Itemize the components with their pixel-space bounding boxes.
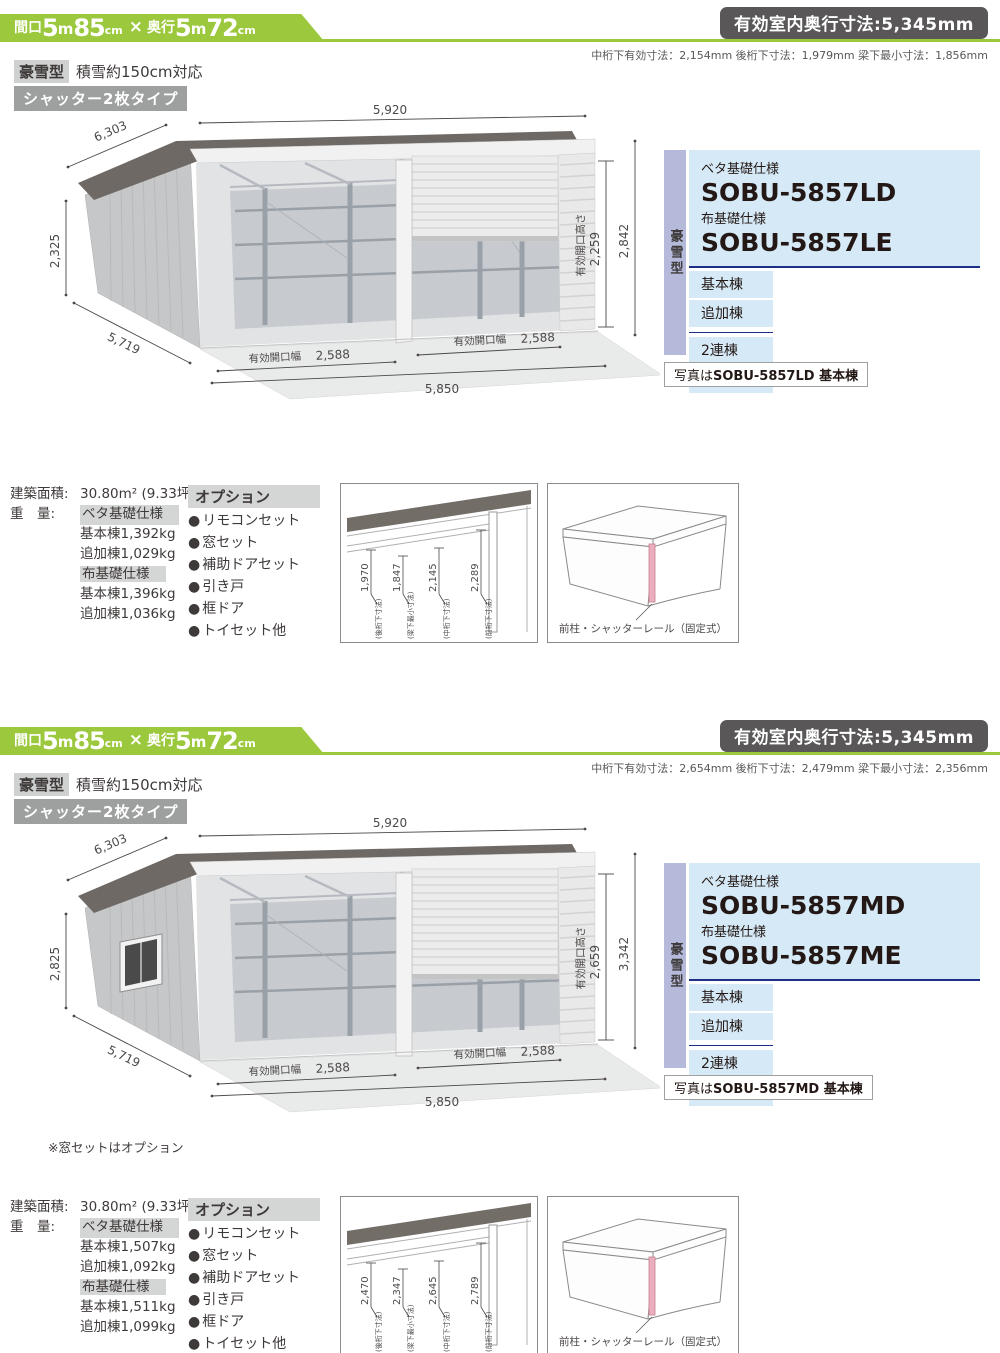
photo-caption-model: SOBU-5857MD 基本棟 <box>713 1082 863 1097</box>
beta-weight-header: ベタ基礎仕様 <box>80 505 179 525</box>
cs-label-3: (中桁下寸法) <box>442 1311 451 1352</box>
dim-outer-height: 3,342 <box>617 937 631 971</box>
option-frame-door: 框ドア <box>202 601 244 619</box>
nuno-foundation-label: 布基礎仕様 <box>701 208 968 227</box>
beta-foundation-label: ベタ基礎仕様 <box>701 871 968 890</box>
area-label: 建築面積: <box>10 1198 80 1218</box>
aperture-cm: 85 <box>73 729 104 753</box>
dim-total-width: 5,850 <box>425 382 459 396</box>
dim-opening-width-right: 2,588 <box>520 330 555 346</box>
dim-left-height: 2,825 <box>50 947 62 981</box>
cs-dim-1: 1,970 <box>360 563 371 592</box>
unit-divider <box>689 332 773 333</box>
option-sliding-door: 引き戸 <box>202 579 244 597</box>
snow-type-vertical-bar: 豪雪型 <box>664 863 686 1068</box>
snow-type-badge: 豪雪型 <box>14 773 69 796</box>
snow-type-vertical-label: 豪雪型 <box>666 942 685 990</box>
aperture-m-unit: m <box>58 20 74 40</box>
bullet-icon: ● <box>188 601 200 619</box>
bullet-icon: ● <box>188 579 200 597</box>
beta-model-name: SOBU-5857MD <box>701 890 968 921</box>
snow-load-note: 積雪約150cm対応 <box>76 61 203 82</box>
aperture-cm-unit: cm <box>105 24 123 40</box>
dim-top-width: 5,920 <box>373 103 407 117</box>
options-block: オプション ●リモコンセット ●窓セット ●補助ドアセット ●引き戸 ●框ドア … <box>188 485 338 640</box>
cs-label-1: (後桁下寸法) <box>374 598 383 639</box>
nuno-weight-basic: 基本棟1,396kg <box>10 585 196 605</box>
opening-width-label-right: 有効開口幅 <box>453 333 506 349</box>
photo-caption-prefix: 写真は <box>674 369 713 384</box>
size-header-bar: 間口5m85cm×奥行5m72cm <box>0 727 324 754</box>
pillar-diagram: 前柱・シャッターレール（固定式） <box>547 483 739 643</box>
option-sliding-door: 引き戸 <box>202 1292 244 1310</box>
shutter-rail-pillar <box>649 1257 655 1315</box>
dim-opening-width-right: 2,588 <box>520 1043 555 1059</box>
dim-opening-height: 2,659 <box>588 945 602 979</box>
model-panel: 豪雪型 ベタ基礎仕様 SOBU-5857LD 布基礎仕様 SOBU-5857LE… <box>664 150 980 395</box>
option-remote: リモコンセット <box>202 513 300 531</box>
cs-label-2: (梁下最小寸法) <box>406 591 415 639</box>
bullet-icon: ● <box>188 623 200 641</box>
unit-additional: 追加棟 <box>689 1013 773 1040</box>
aperture-label: 間口 <box>14 730 42 753</box>
product-section-sobu-5857ld: 間口5m85cm×奥行5m72cm 有効室内奥行寸法:5,345mm 中桁下有効… <box>0 0 1000 713</box>
beta-weight-basic: 基本棟1,392kg <box>10 525 196 545</box>
depth-m-unit: m <box>191 733 207 753</box>
model-names-box: ベタ基礎仕様 SOBU-5857LD 布基礎仕様 SOBU-5857LE <box>689 150 980 268</box>
weight-label: 重 量: <box>10 505 80 525</box>
cs-label-4: (前桁下寸法) <box>484 598 493 639</box>
dim-side-diagonal: 5,719 <box>105 1043 142 1071</box>
model-panel-main: ベタ基礎仕様 SOBU-5857LD 布基礎仕様 SOBU-5857LE 基本棟… <box>689 150 980 395</box>
interior-depth-badge: 有効室内奥行寸法:5,345mm <box>720 720 988 752</box>
product-section-sobu-5857md: 間口5m85cm×奥行5m72cm 有効室内奥行寸法:5,345mm 中桁下有効… <box>0 713 1000 1353</box>
bullet-icon: ● <box>188 1270 200 1288</box>
unit-divider <box>689 1045 773 1046</box>
nuno-model-name: SOBU-5857ME <box>701 940 968 971</box>
photo-caption: 写真はSOBU-5857LD 基本棟 <box>664 362 868 387</box>
pillar-diagram-label: 前柱・シャッターレール（固定式） <box>559 1335 727 1348</box>
cs-dim-2: 1,847 <box>392 563 403 592</box>
beta-weight-additional: 追加棟1,029kg <box>10 545 196 565</box>
clearance-note: 中桁下有効寸法：2,154mm 後桁下寸法：1,979mm 梁下最小寸法：1,8… <box>591 47 988 63</box>
model-names-box: ベタ基礎仕様 SOBU-5857MD 布基礎仕様 SOBU-5857ME <box>689 863 980 981</box>
aperture-label: 間口 <box>14 17 42 40</box>
bullet-icon: ● <box>188 1336 200 1353</box>
unit-double: 2連棟 <box>689 1050 773 1077</box>
cs-dim-2: 2,347 <box>392 1276 403 1305</box>
photo-caption-model: SOBU-5857LD 基本棟 <box>713 369 858 384</box>
bullet-icon: ● <box>188 1248 200 1266</box>
pillar-diagram-label: 前柱・シャッターレール（固定式） <box>559 622 727 635</box>
pillar-diagram: 前柱・シャッターレール（固定式） <box>547 1196 739 1353</box>
snow-type-row: 豪雪型 積雪約150cm対応 <box>14 773 203 796</box>
beta-weight-additional: 追加棟1,092kg <box>10 1258 196 1278</box>
aperture-m: 5 <box>42 16 58 40</box>
opening-width-label-right: 有効開口幅 <box>453 1046 506 1062</box>
cs-label-1: (後桁下寸法) <box>374 1311 383 1352</box>
bullet-icon: ● <box>188 513 200 531</box>
bullet-icon: ● <box>188 557 200 575</box>
options-title: オプション <box>188 485 320 508</box>
nuno-weight-header: 布基礎仕様 <box>80 566 166 582</box>
depth-m: 5 <box>175 729 191 753</box>
bullet-icon: ● <box>188 1226 200 1244</box>
dim-total-width: 5,850 <box>425 1095 459 1109</box>
unit-basic: 基本棟 <box>689 984 773 1011</box>
area-value: 30.80m² (9.33坪) <box>80 1198 196 1218</box>
depth-cm: 72 <box>206 729 237 753</box>
shutter-rail-pillar <box>649 544 655 602</box>
nuno-foundation-label: 布基礎仕様 <box>701 921 968 940</box>
opening-width-label-left: 有効開口幅 <box>248 350 301 366</box>
dim-top-width: 5,920 <box>373 816 407 830</box>
cs-label-3: (中桁下寸法) <box>442 598 451 639</box>
snow-type-badge: 豪雪型 <box>14 60 69 83</box>
aperture-cm-unit: cm <box>105 737 123 753</box>
options-title: オプション <box>188 1198 320 1221</box>
specs-block: 建築面積:30.80m² (9.33坪) 重 量:ベタ基礎仕様 基本棟1,507… <box>10 1198 196 1338</box>
beta-foundation-label: ベタ基礎仕様 <box>701 158 968 177</box>
times-sign: × <box>123 17 147 40</box>
option-aux-door: 補助ドアセット <box>202 557 300 575</box>
cs-label-4: (前桁下寸法) <box>484 1311 493 1352</box>
dim-side-diagonal: 5,719 <box>105 330 142 358</box>
snow-type-vertical-label: 豪雪型 <box>666 229 685 277</box>
option-frame-door: 框ドア <box>202 1314 244 1332</box>
nuno-weight-additional: 追加棟1,099kg <box>10 1318 196 1338</box>
opening-height-label: 有効開口高さ <box>574 214 587 277</box>
snow-type-vertical-bar: 豪雪型 <box>664 150 686 355</box>
garage-isometric-drawing: 5,920 6,303 2,825 5,719 3,342 有効開口高さ 2,6… <box>50 816 660 1126</box>
beta-model-name: SOBU-5857LD <box>701 177 968 208</box>
dim-opening-height: 2,259 <box>588 232 602 266</box>
bullet-icon: ● <box>188 1292 200 1310</box>
cs-dim-4: 2,789 <box>470 1276 481 1305</box>
bullet-icon: ● <box>188 535 200 553</box>
cs-label-2: (梁下最小寸法) <box>406 1304 415 1352</box>
cs-dim-3: 2,645 <box>428 1276 439 1305</box>
area-label: 建築面積: <box>10 485 80 505</box>
dim-roof-diagonal: 6,303 <box>92 831 129 857</box>
dim-roof-diagonal: 6,303 <box>92 118 129 144</box>
weight-label: 重 量: <box>10 1218 80 1238</box>
model-panel-main: ベタ基礎仕様 SOBU-5857MD 布基礎仕様 SOBU-5857ME 基本棟… <box>689 863 980 1108</box>
specs-block: 建築面積:30.80m² (9.33坪) 重 量:ベタ基礎仕様 基本棟1,392… <box>10 485 196 625</box>
catalog-page: 間口5m85cm×奥行5m72cm 有効室内奥行寸法:5,345mm 中桁下有効… <box>0 0 1000 1353</box>
dim-outer-height: 2,842 <box>617 224 631 258</box>
nuno-weight-basic: 基本棟1,511kg <box>10 1298 196 1318</box>
option-toilet-set: トイセット他 <box>202 1336 286 1353</box>
depth-label: 奥行 <box>147 730 175 753</box>
snow-type-row: 豪雪型 積雪約150cm対応 <box>14 60 203 83</box>
garage-isometric-drawing: 5,920 6,303 2,325 5,719 2,842 有効開口高さ 2,2… <box>50 103 660 413</box>
options-block: オプション ●リモコンセット ●窓セット ●補助ドアセット ●引き戸 ●框ドア … <box>188 1198 338 1353</box>
option-toilet-set: トイセット他 <box>202 623 286 641</box>
beta-weight-basic: 基本棟1,507kg <box>10 1238 196 1258</box>
option-remote: リモコンセット <box>202 1226 300 1244</box>
unit-basic: 基本棟 <box>689 271 773 298</box>
nuno-weight-additional: 追加棟1,036kg <box>10 605 196 625</box>
photo-caption: 写真はSOBU-5857MD 基本棟 <box>664 1075 873 1100</box>
cs-dim-4: 2,289 <box>470 563 481 592</box>
depth-cm: 72 <box>206 16 237 40</box>
nuno-weight-header: 布基礎仕様 <box>80 1279 166 1295</box>
depth-m: 5 <box>175 16 191 40</box>
dim-opening-width-left: 2,588 <box>315 347 350 363</box>
beta-weight-header: ベタ基礎仕様 <box>80 1218 179 1238</box>
center-pillar <box>396 160 412 343</box>
aperture-cm: 85 <box>73 16 104 40</box>
snow-load-note: 積雪約150cm対応 <box>76 774 203 795</box>
garage-body <box>78 131 660 399</box>
opening-width-label-left: 有効開口幅 <box>248 1063 301 1079</box>
cs-dim-1: 2,470 <box>360 1276 371 1305</box>
cross-section-diagram: 1,970 1,847 2,145 2,289 (後桁下寸法) (梁下最小寸法)… <box>340 483 538 643</box>
dim-opening-width-left: 2,588 <box>315 1060 350 1076</box>
depth-label: 奥行 <box>147 17 175 40</box>
model-panel: 豪雪型 ベタ基礎仕様 SOBU-5857MD 布基礎仕様 SOBU-5857ME… <box>664 863 980 1108</box>
depth-m-unit: m <box>191 20 207 40</box>
cs-dim-3: 2,145 <box>428 563 439 592</box>
size-header-bar: 間口5m85cm×奥行5m72cm <box>0 14 324 41</box>
times-sign: × <box>123 730 147 753</box>
dim-left-height: 2,325 <box>50 234 62 268</box>
photo-caption-prefix: 写真は <box>674 1082 713 1097</box>
aperture-m-unit: m <box>58 733 74 753</box>
depth-cm-unit: cm <box>238 737 256 753</box>
center-pillar <box>396 873 412 1056</box>
option-window: 窓セット <box>202 1248 258 1266</box>
depth-cm-unit: cm <box>238 24 256 40</box>
unit-double: 2連棟 <box>689 337 773 364</box>
aperture-m: 5 <box>42 729 58 753</box>
garage-body <box>78 844 660 1112</box>
window-option-note: ※窓セットはオプション <box>48 1137 183 1156</box>
cross-section-diagram: 2,470 2,347 2,645 2,789 (後桁下寸法) (梁下最小寸法)… <box>340 1196 538 1353</box>
area-value: 30.80m² (9.33坪) <box>80 485 196 505</box>
option-window: 窓セット <box>202 535 258 553</box>
bullet-icon: ● <box>188 1314 200 1332</box>
option-aux-door: 補助ドアセット <box>202 1270 300 1288</box>
unit-additional: 追加棟 <box>689 300 773 327</box>
interior-depth-badge: 有効室内奥行寸法:5,345mm <box>720 7 988 39</box>
opening-height-label: 有効開口高さ <box>574 927 587 990</box>
clearance-note: 中桁下有効寸法：2,654mm 後桁下寸法：2,479mm 梁下最小寸法：2,3… <box>591 760 988 776</box>
nuno-model-name: SOBU-5857LE <box>701 227 968 258</box>
